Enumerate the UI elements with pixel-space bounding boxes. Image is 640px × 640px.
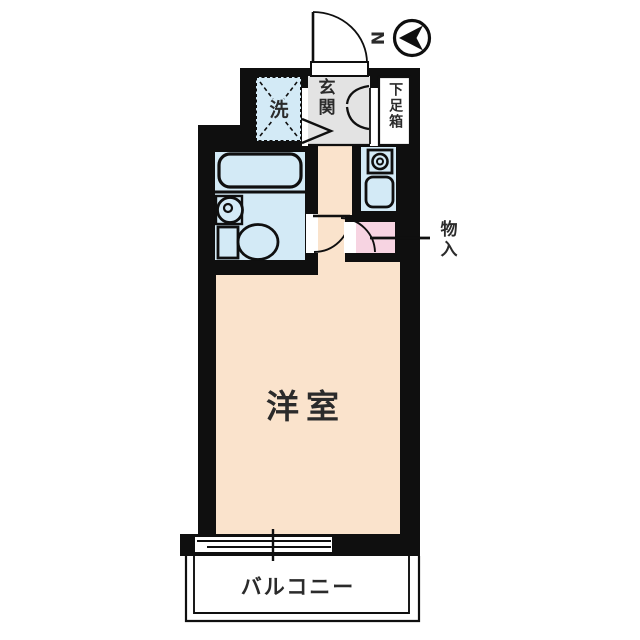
toilet-tank-icon	[218, 227, 238, 258]
bathroom-door-opening	[306, 214, 318, 253]
shoe-box-door-strip	[370, 88, 379, 146]
entrance-left-opening	[302, 88, 308, 146]
wall-right-upper	[410, 68, 420, 148]
washer-label: 洗	[269, 100, 288, 122]
toilet-bowl-icon	[238, 225, 278, 260]
kitchen-sink-icon	[366, 177, 393, 207]
floor-plan-page: 洋室 バルコニー 玄関 下足箱 洗 物入 N	[0, 0, 640, 640]
wall-right-main	[400, 140, 420, 556]
bathtub-icon	[219, 154, 301, 187]
storage-door-strip	[344, 222, 356, 253]
front-door-swing-arc	[313, 12, 367, 63]
shoe-box-label: 下足箱	[387, 82, 403, 130]
window-opening	[195, 537, 332, 552]
north-label: N	[370, 31, 390, 45]
kitchen	[361, 147, 396, 211]
front-door-opening	[311, 62, 368, 76]
balcony-label: バルコニー	[241, 575, 356, 599]
sink-icon	[218, 198, 243, 223]
entrance-label: 玄関	[314, 78, 334, 118]
storage-label: 物入	[436, 220, 456, 260]
wall-left	[198, 125, 216, 556]
main-room-label: 洋室	[266, 388, 346, 426]
compass	[395, 21, 430, 56]
